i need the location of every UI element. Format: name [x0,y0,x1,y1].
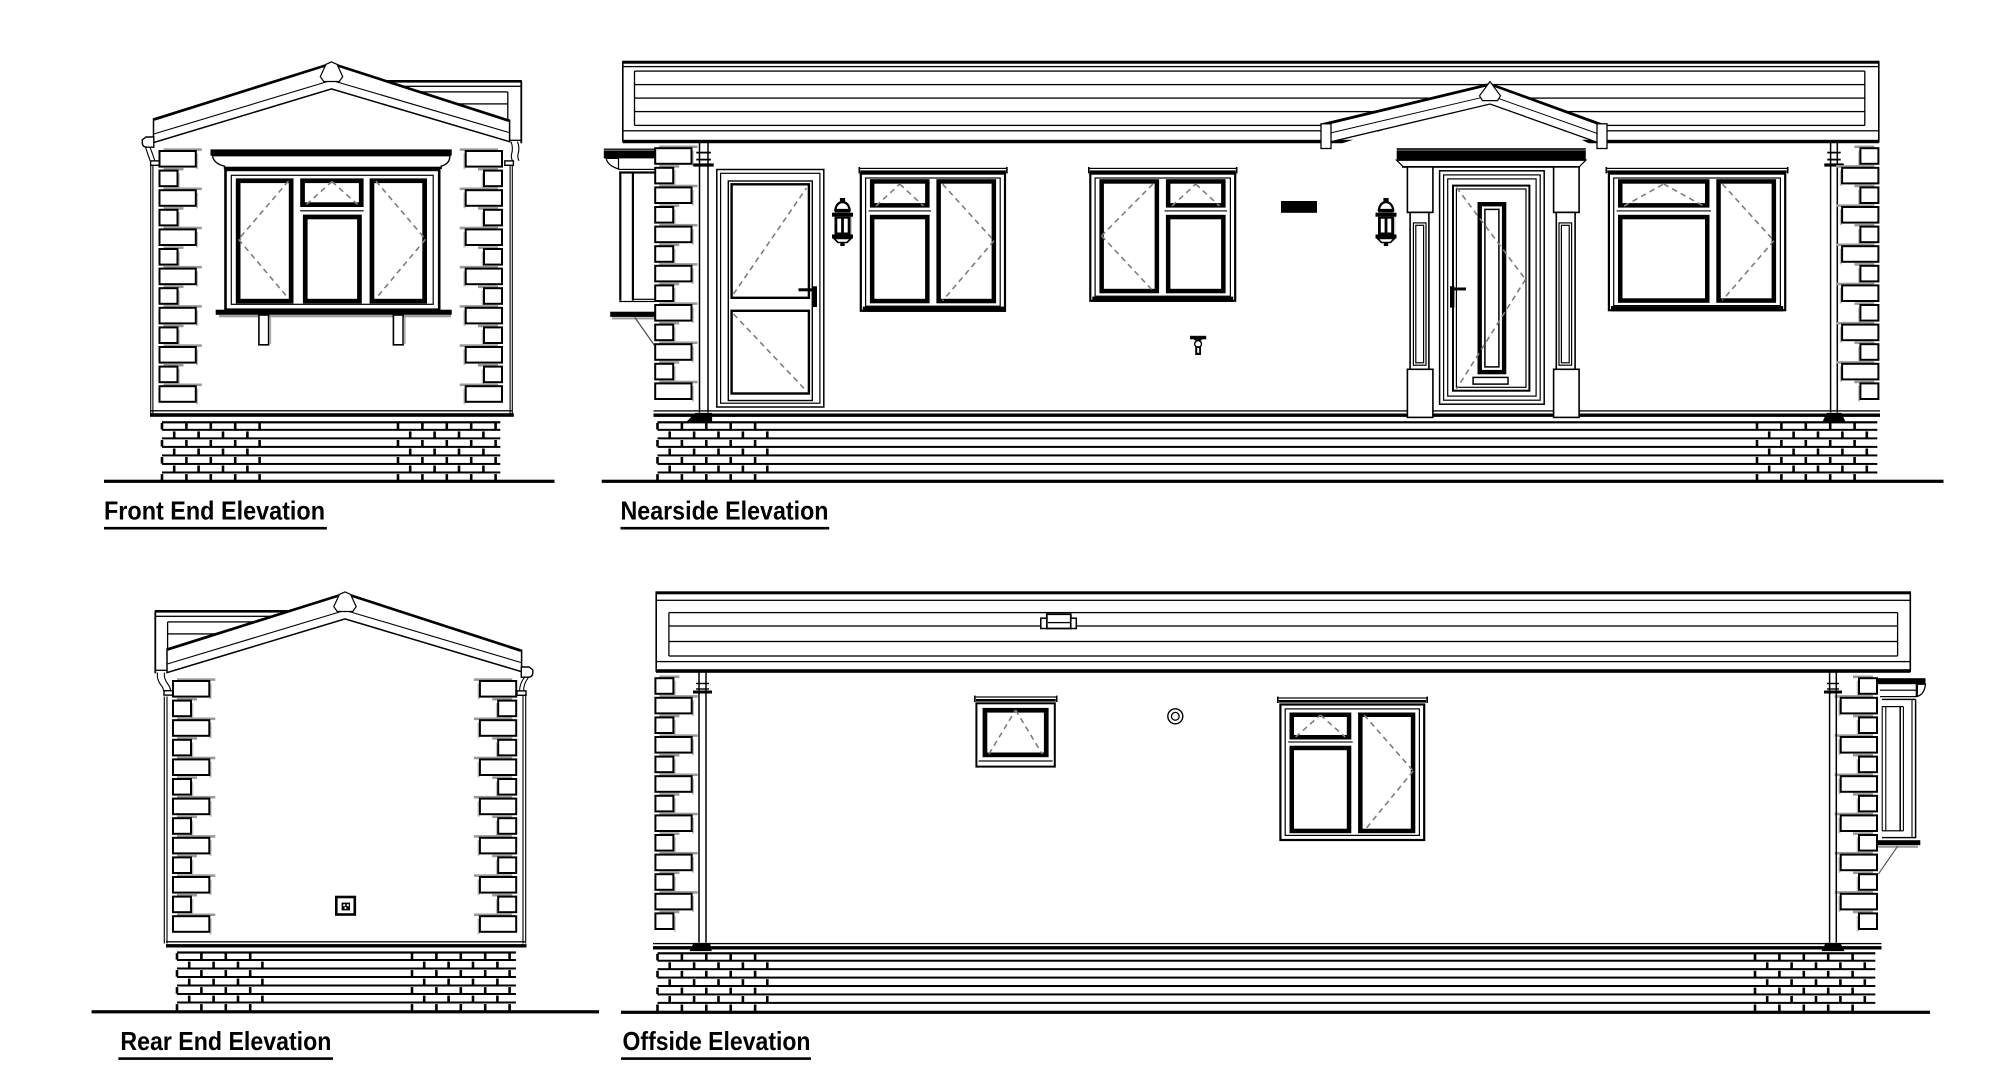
svg-text:Nearside Elevation: Nearside Elevation [621,496,829,526]
svg-text:Rear End Elevation: Rear End Elevation [120,1026,331,1056]
svg-text:Front End Elevation: Front End Elevation [104,496,325,526]
svg-text:Offside Elevation: Offside Elevation [623,1026,811,1056]
